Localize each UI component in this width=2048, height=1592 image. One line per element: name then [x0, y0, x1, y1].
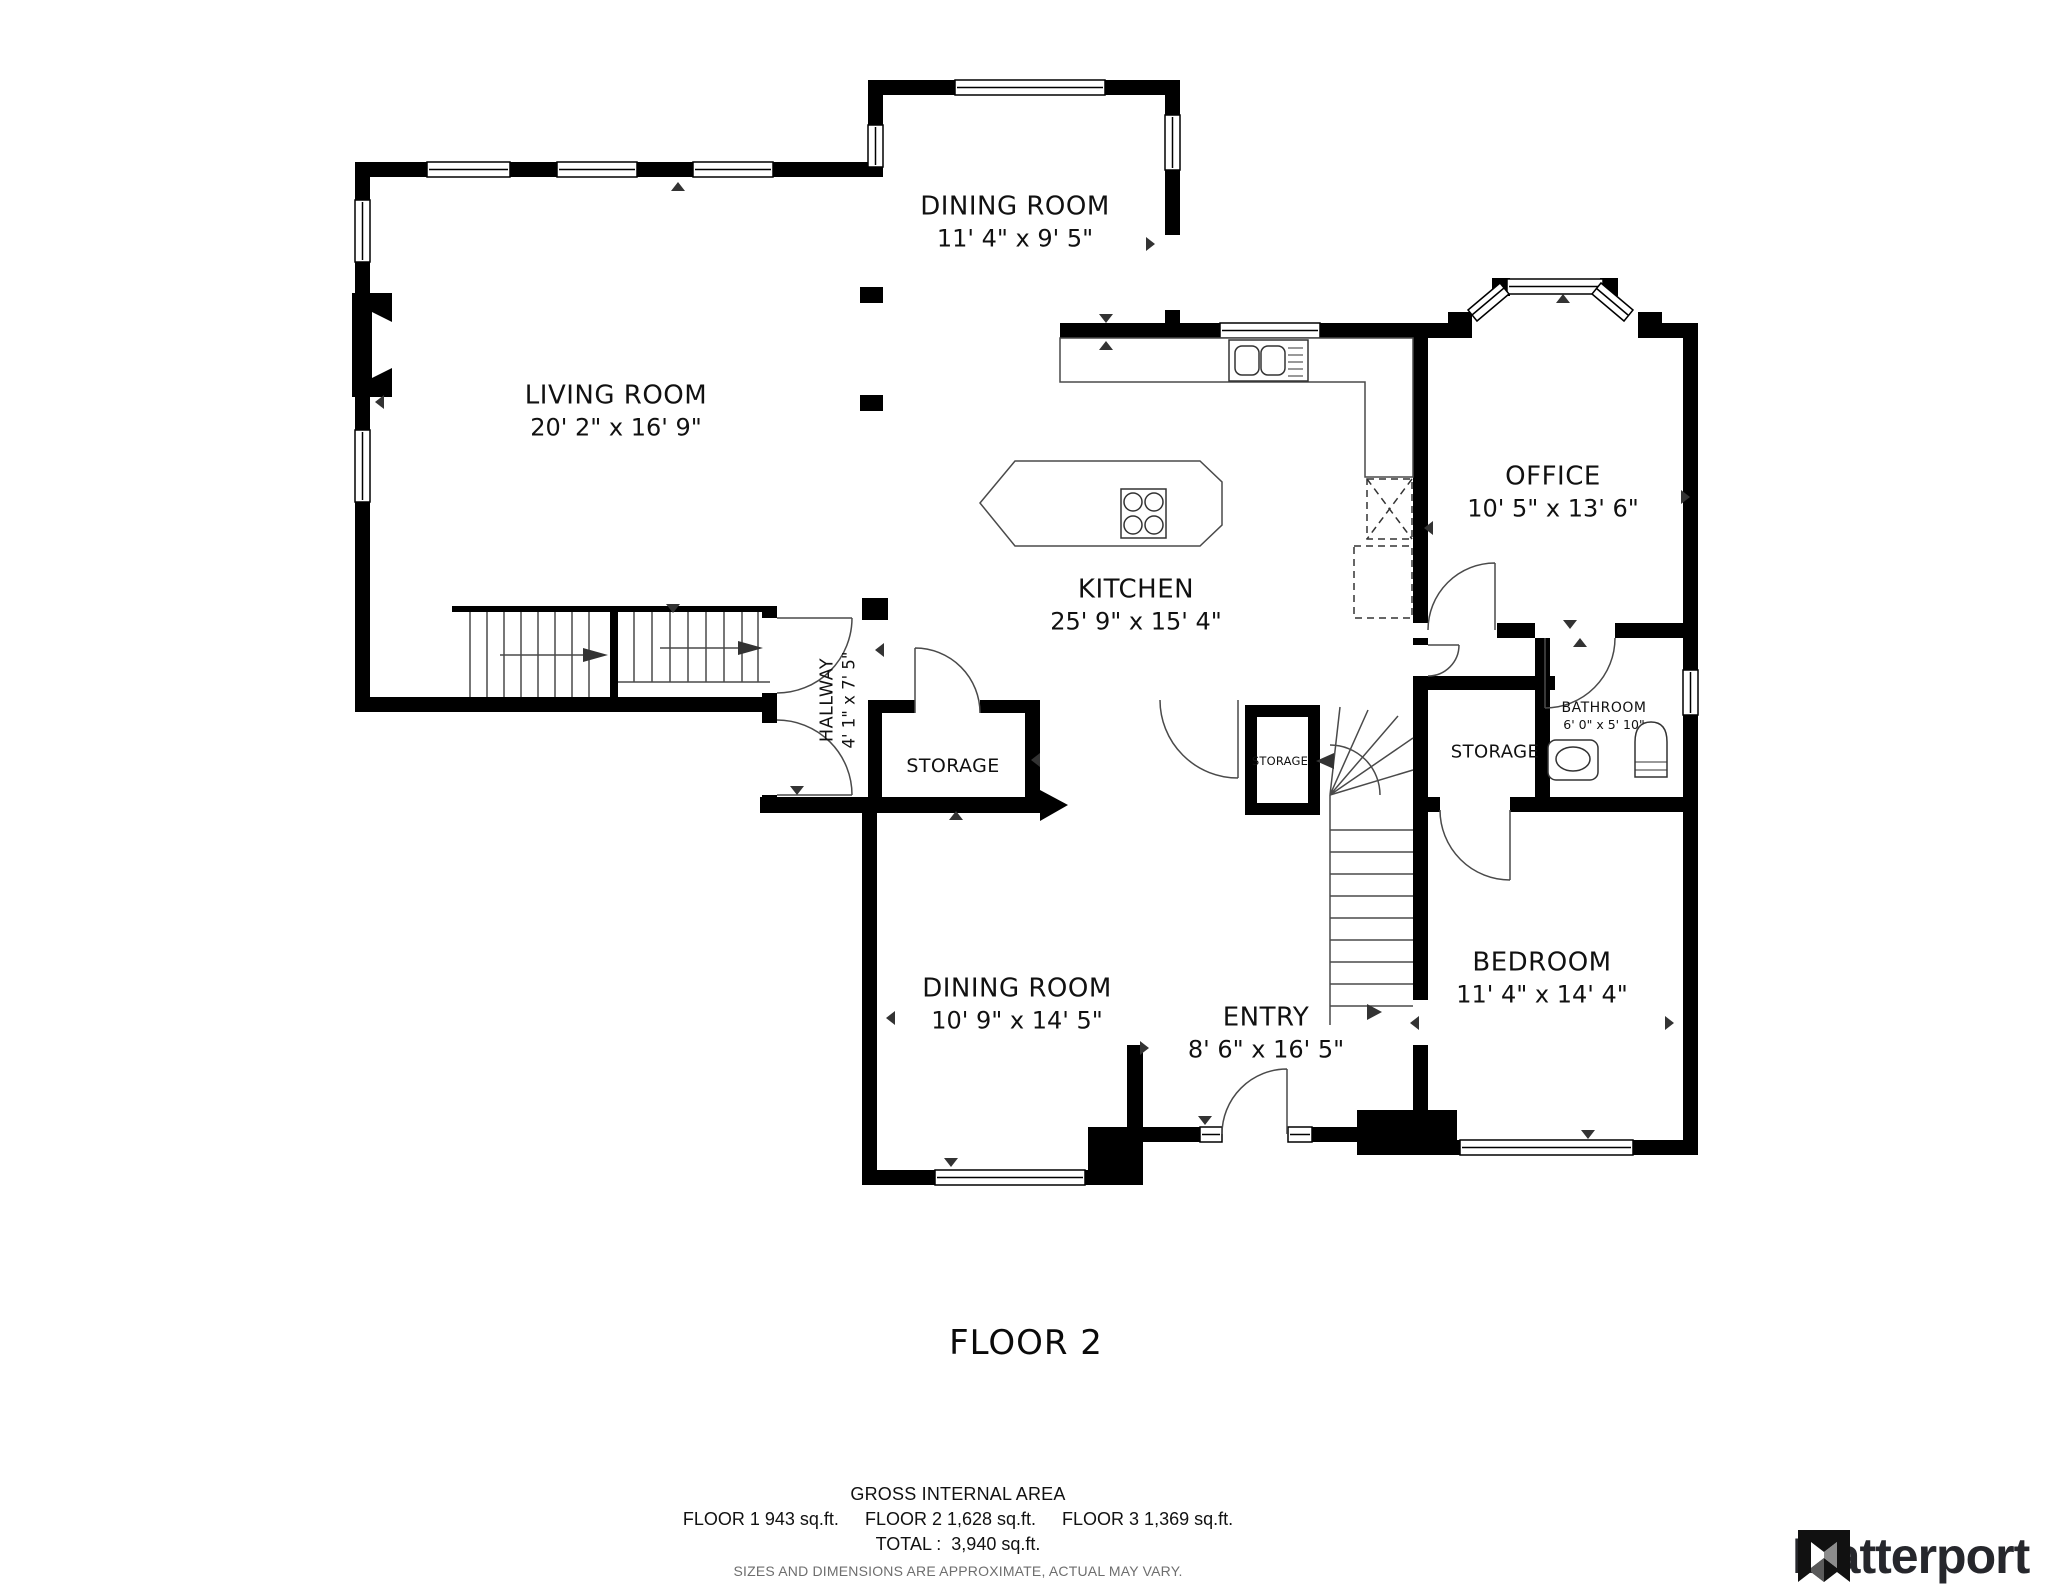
- room-label-dining-bottom: DINING ROOM 10' 9" x 14' 5": [922, 974, 1112, 1035]
- room-label-storage-small: STORAGE: [1252, 755, 1308, 769]
- room-name: OFFICE: [1467, 462, 1639, 493]
- room-name: KITCHEN: [1050, 575, 1222, 606]
- floor-1-area: FLOOR 1 943 sq.ft.: [683, 1509, 839, 1530]
- room-name: ENTRY: [1188, 1003, 1344, 1034]
- room-name: DINING ROOM: [922, 974, 1112, 1005]
- room-name: BATHROOM: [1561, 700, 1646, 717]
- matterport-mark-icon: [1792, 1524, 1856, 1588]
- room-dims: 8' 6" x 16' 5": [1188, 1035, 1344, 1063]
- floor-areas-row: FLOOR 1 943 sq.ft. FLOOR 2 1,628 sq.ft. …: [683, 1509, 1233, 1530]
- room-label-storage-left: STORAGE: [906, 755, 999, 777]
- total-area: TOTAL : 3,940 sq.ft.: [683, 1534, 1233, 1555]
- room-label-office: OFFICE 10' 5" x 13' 6": [1467, 462, 1639, 523]
- room-label-dining-top: DINING ROOM 11' 4" x 9' 5": [920, 192, 1110, 253]
- room-name: STORAGE: [1451, 741, 1540, 762]
- room-name: BEDROOM: [1456, 948, 1628, 979]
- floor-plan-page: DINING ROOM 11' 4" x 9' 5" LIVING ROOM 2…: [0, 0, 2048, 1592]
- stove-cooktop: [1121, 489, 1166, 538]
- room-label-entry: ENTRY 8' 6" x 16' 5": [1188, 1003, 1344, 1064]
- floor-3-area: FLOOR 3 1,369 sq.ft.: [1062, 1509, 1233, 1530]
- room-dims: 25' 9" x 15' 4": [1050, 607, 1222, 635]
- matterport-logo: Matterport: [1792, 1524, 2029, 1588]
- kitchen-sink: [1229, 340, 1308, 381]
- room-label-living: LIVING ROOM 20' 2" x 16' 9": [525, 381, 707, 442]
- kitchen-island: [980, 461, 1222, 546]
- room-label-storage-right: STORAGE: [1451, 741, 1540, 762]
- floor-title: FLOOR 2: [949, 1323, 1103, 1363]
- room-dims: 11' 4" x 9' 5": [920, 224, 1110, 252]
- area-summary: GROSS INTERNAL AREA FLOOR 1 943 sq.ft. F…: [683, 1484, 1233, 1579]
- room-name: DINING ROOM: [920, 192, 1110, 223]
- room-name: HALLWAY: [817, 652, 838, 749]
- room-label-bedroom: BEDROOM 11' 4" x 14' 4": [1456, 948, 1628, 1009]
- gross-internal-area-title: GROSS INTERNAL AREA: [683, 1484, 1233, 1505]
- room-dims: 20' 2" x 16' 9": [525, 413, 707, 441]
- room-label-bathroom: BATHROOM 6' 0" x 5' 10": [1561, 700, 1646, 732]
- room-name: LIVING ROOM: [525, 381, 707, 412]
- toilet: [1548, 740, 1598, 780]
- room-label-hallway: HALLWAY 4' 1" x 7' 5": [817, 652, 858, 749]
- room-dims: 4' 1" x 7' 5": [839, 652, 858, 749]
- appliance-dashed-boxes: [1354, 479, 1412, 618]
- room-label-kitchen: KITCHEN 25' 9" x 15' 4": [1050, 575, 1222, 636]
- room-name: STORAGE: [1252, 755, 1308, 769]
- room-name: STORAGE: [906, 755, 999, 777]
- room-dims: 11' 4" x 14' 4": [1456, 980, 1628, 1008]
- fireplace: [372, 312, 392, 378]
- room-dims: 10' 5" x 13' 6": [1467, 494, 1639, 522]
- room-dims: 6' 0" x 5' 10": [1561, 717, 1646, 732]
- disclaimer-text: SIZES AND DIMENSIONS ARE APPROXIMATE, AC…: [683, 1563, 1233, 1579]
- room-dims: 10' 9" x 14' 5": [922, 1006, 1112, 1034]
- floor-2-area: FLOOR 2 1,628 sq.ft.: [865, 1509, 1036, 1530]
